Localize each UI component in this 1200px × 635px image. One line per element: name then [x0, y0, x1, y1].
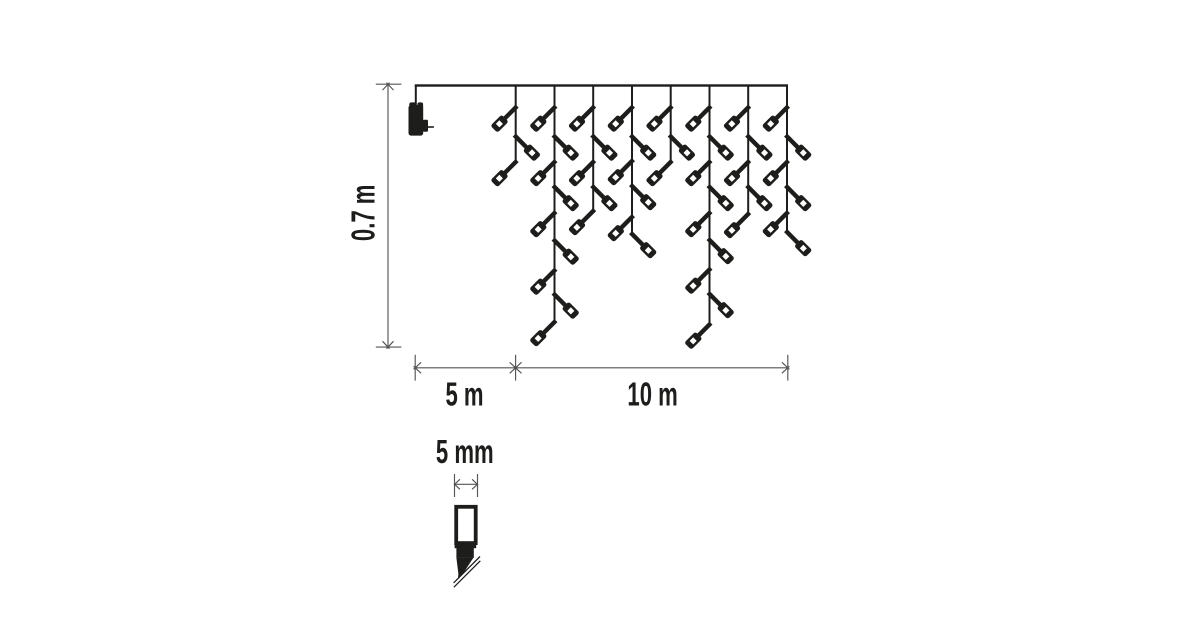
svg-text:5 m: 5 m: [445, 376, 483, 412]
svg-text:0.7 m: 0.7 m: [345, 185, 381, 242]
svg-text:10 m: 10 m: [627, 376, 677, 412]
svg-text:5 mm: 5 mm: [436, 433, 494, 469]
